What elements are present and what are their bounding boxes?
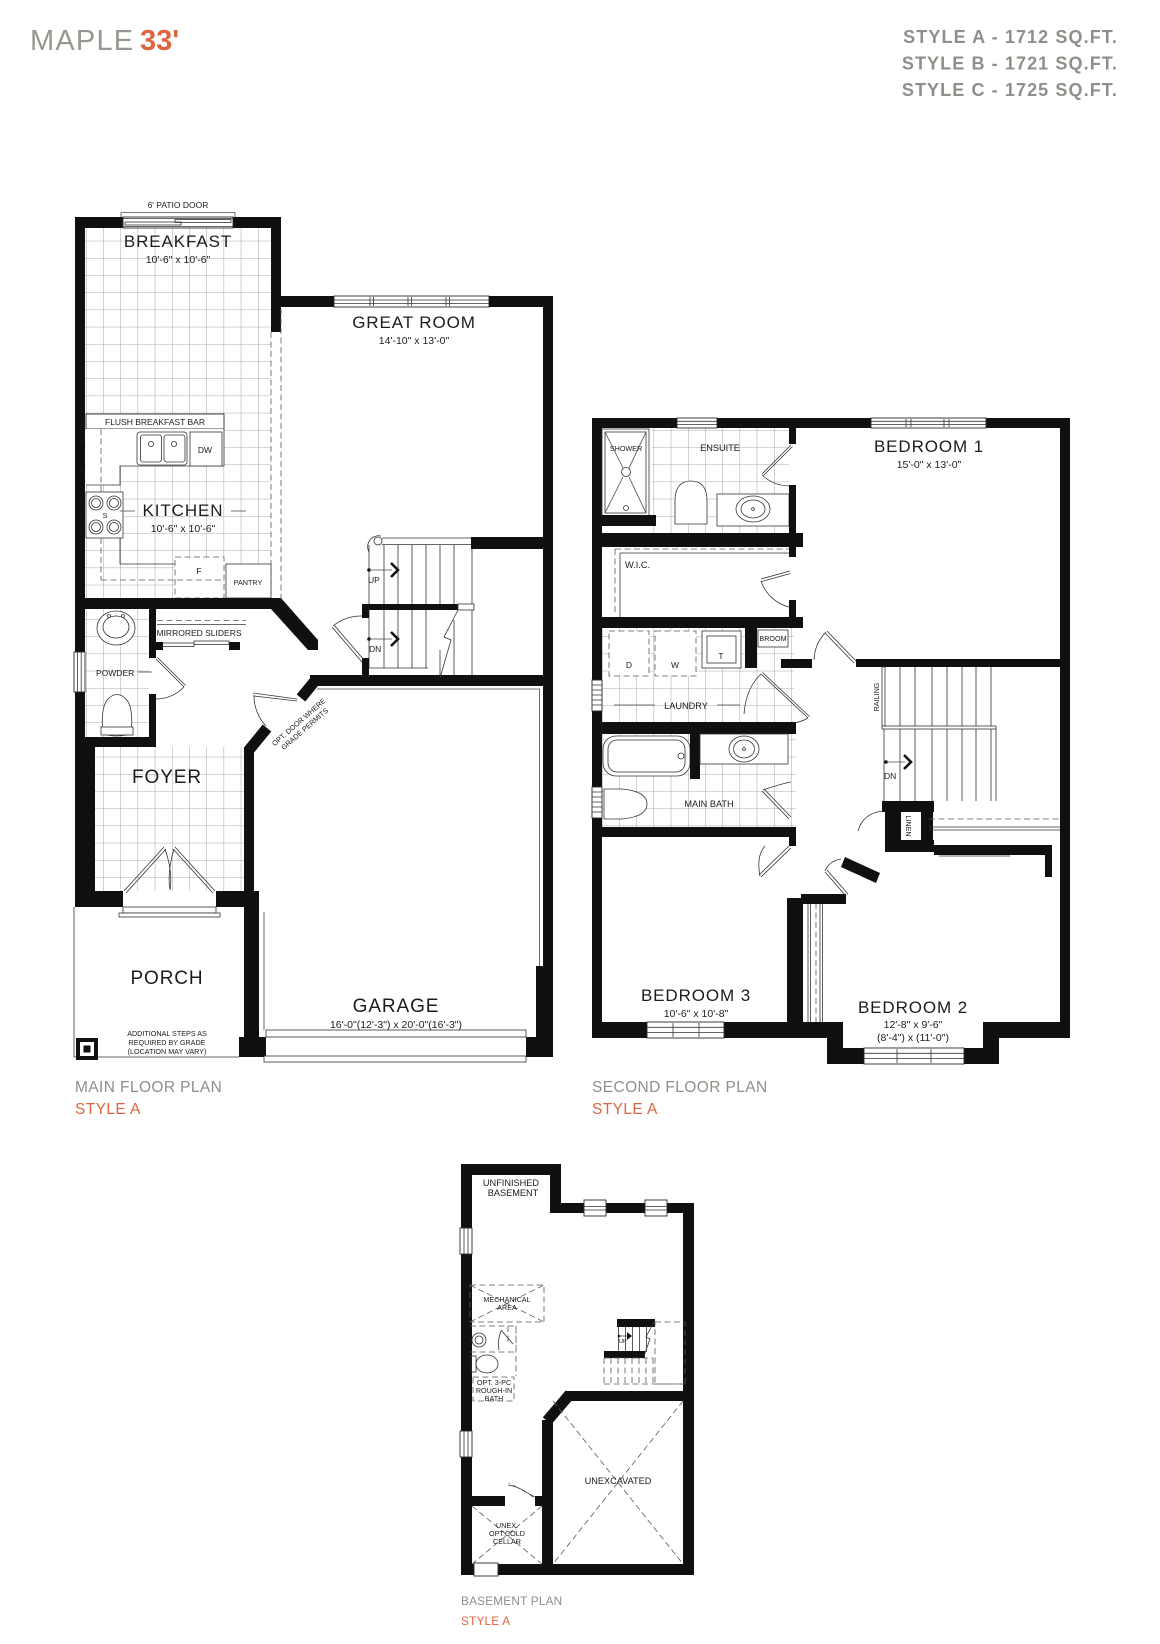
- svg-text:10'-6" x 10'-6": 10'-6" x 10'-6": [146, 254, 211, 266]
- svg-text:SECOND FLOOR PLAN: SECOND FLOOR PLAN: [592, 1079, 768, 1096]
- svg-text:UNEXCAVATED: UNEXCAVATED: [585, 1476, 652, 1486]
- svg-text:PORCH: PORCH: [130, 968, 203, 989]
- svg-text:LAUNDRY: LAUNDRY: [664, 701, 708, 711]
- svg-text:10'-6" x 10'-8": 10'-6" x 10'-8": [664, 1008, 729, 1020]
- svg-text:STYLE A: STYLE A: [592, 1101, 658, 1118]
- svg-text:RAILING: RAILING: [872, 682, 881, 711]
- svg-text:MAIN BATH: MAIN BATH: [684, 799, 733, 809]
- svg-text:ADDITIONAL STEPS AS: ADDITIONAL STEPS AS: [127, 1029, 207, 1038]
- svg-text:6' PATIO DOOR: 6' PATIO DOOR: [148, 200, 209, 210]
- svg-text:DN: DN: [884, 771, 896, 781]
- svg-text:MAPLE: MAPLE: [30, 25, 134, 57]
- svg-text:UNFINISHED: UNFINISHED: [483, 1178, 540, 1188]
- svg-text:BEDROOM 2: BEDROOM 2: [858, 998, 968, 1017]
- svg-text:SHOWER: SHOWER: [610, 444, 642, 453]
- svg-text:S: S: [103, 511, 108, 520]
- svg-text:GARAGE: GARAGE: [353, 996, 440, 1017]
- svg-text:BATH: BATH: [485, 1394, 504, 1403]
- svg-text:BEDROOM 3: BEDROOM 3: [641, 986, 751, 1005]
- svg-text:STYLE A: STYLE A: [461, 1614, 510, 1628]
- svg-text:GREAT ROOM: GREAT ROOM: [352, 313, 476, 332]
- svg-text:UP: UP: [368, 575, 380, 585]
- svg-text:BASEMENT PLAN: BASEMENT PLAN: [461, 1594, 562, 1608]
- svg-text:KITCHEN: KITCHEN: [143, 501, 224, 520]
- svg-text:POWDER: POWDER: [96, 668, 134, 678]
- svg-text:DW: DW: [198, 445, 212, 455]
- svg-text:16'-0"(12'-3") x 20'-0"(16'-3": 16'-0"(12'-3") x 20'-0"(16'-3"): [330, 1019, 462, 1031]
- svg-text:FLUSH BREAKFAST BAR: FLUSH BREAKFAST BAR: [105, 417, 205, 427]
- svg-text:STYLE B - 1721 SQ.FT.: STYLE B - 1721 SQ.FT.: [902, 54, 1118, 74]
- svg-text:10'-6" x 10'-6": 10'-6" x 10'-6": [151, 523, 216, 535]
- svg-text:UP: UP: [619, 1339, 627, 1345]
- svg-text:W: W: [671, 660, 679, 670]
- svg-text:CELLAR: CELLAR: [493, 1537, 521, 1546]
- svg-text:STYLE C - 1725 SQ.FT.: STYLE C - 1725 SQ.FT.: [902, 80, 1118, 100]
- svg-text:(8'-4") x (11'-0"): (8'-4") x (11'-0"): [877, 1032, 949, 1044]
- svg-text:BREAKFAST: BREAKFAST: [124, 232, 232, 251]
- svg-text:MIRRORED SLIDERS: MIRRORED SLIDERS: [156, 628, 241, 638]
- svg-text:STYLE A - 1712 SQ.FT.: STYLE A - 1712 SQ.FT.: [903, 27, 1118, 47]
- svg-text:LINEN: LINEN: [904, 815, 913, 836]
- svg-text:STYLE A: STYLE A: [75, 1101, 141, 1118]
- svg-text:BASEMENT: BASEMENT: [488, 1188, 539, 1198]
- svg-text:15'-0" x 13'-0": 15'-0" x 13'-0": [897, 459, 962, 471]
- svg-text:MAIN FLOOR PLAN: MAIN FLOOR PLAN: [75, 1079, 222, 1096]
- svg-text:D: D: [626, 660, 632, 670]
- svg-text:(LOCATION MAY VARY): (LOCATION MAY VARY): [128, 1047, 207, 1056]
- svg-text:PANTRY: PANTRY: [234, 578, 263, 587]
- svg-text:W.I.C.: W.I.C.: [625, 560, 650, 570]
- svg-text:33': 33': [140, 25, 179, 57]
- svg-text:FOYER: FOYER: [132, 767, 202, 788]
- svg-text:T: T: [718, 651, 723, 661]
- svg-text:14'-10" x 13'-0": 14'-10" x 13'-0": [379, 335, 450, 347]
- svg-text:12'-8" x 9'-6": 12'-8" x 9'-6": [884, 1019, 943, 1031]
- svg-text:DN: DN: [369, 644, 381, 654]
- svg-text:BROOM: BROOM: [759, 634, 786, 643]
- svg-text:REQUIRED BY GRADE: REQUIRED BY GRADE: [129, 1038, 206, 1047]
- svg-text:AREA: AREA: [497, 1303, 517, 1312]
- svg-text:F: F: [196, 566, 201, 576]
- svg-text:BEDROOM 1: BEDROOM 1: [874, 437, 984, 456]
- svg-text:ENSUITE: ENSUITE: [700, 443, 740, 453]
